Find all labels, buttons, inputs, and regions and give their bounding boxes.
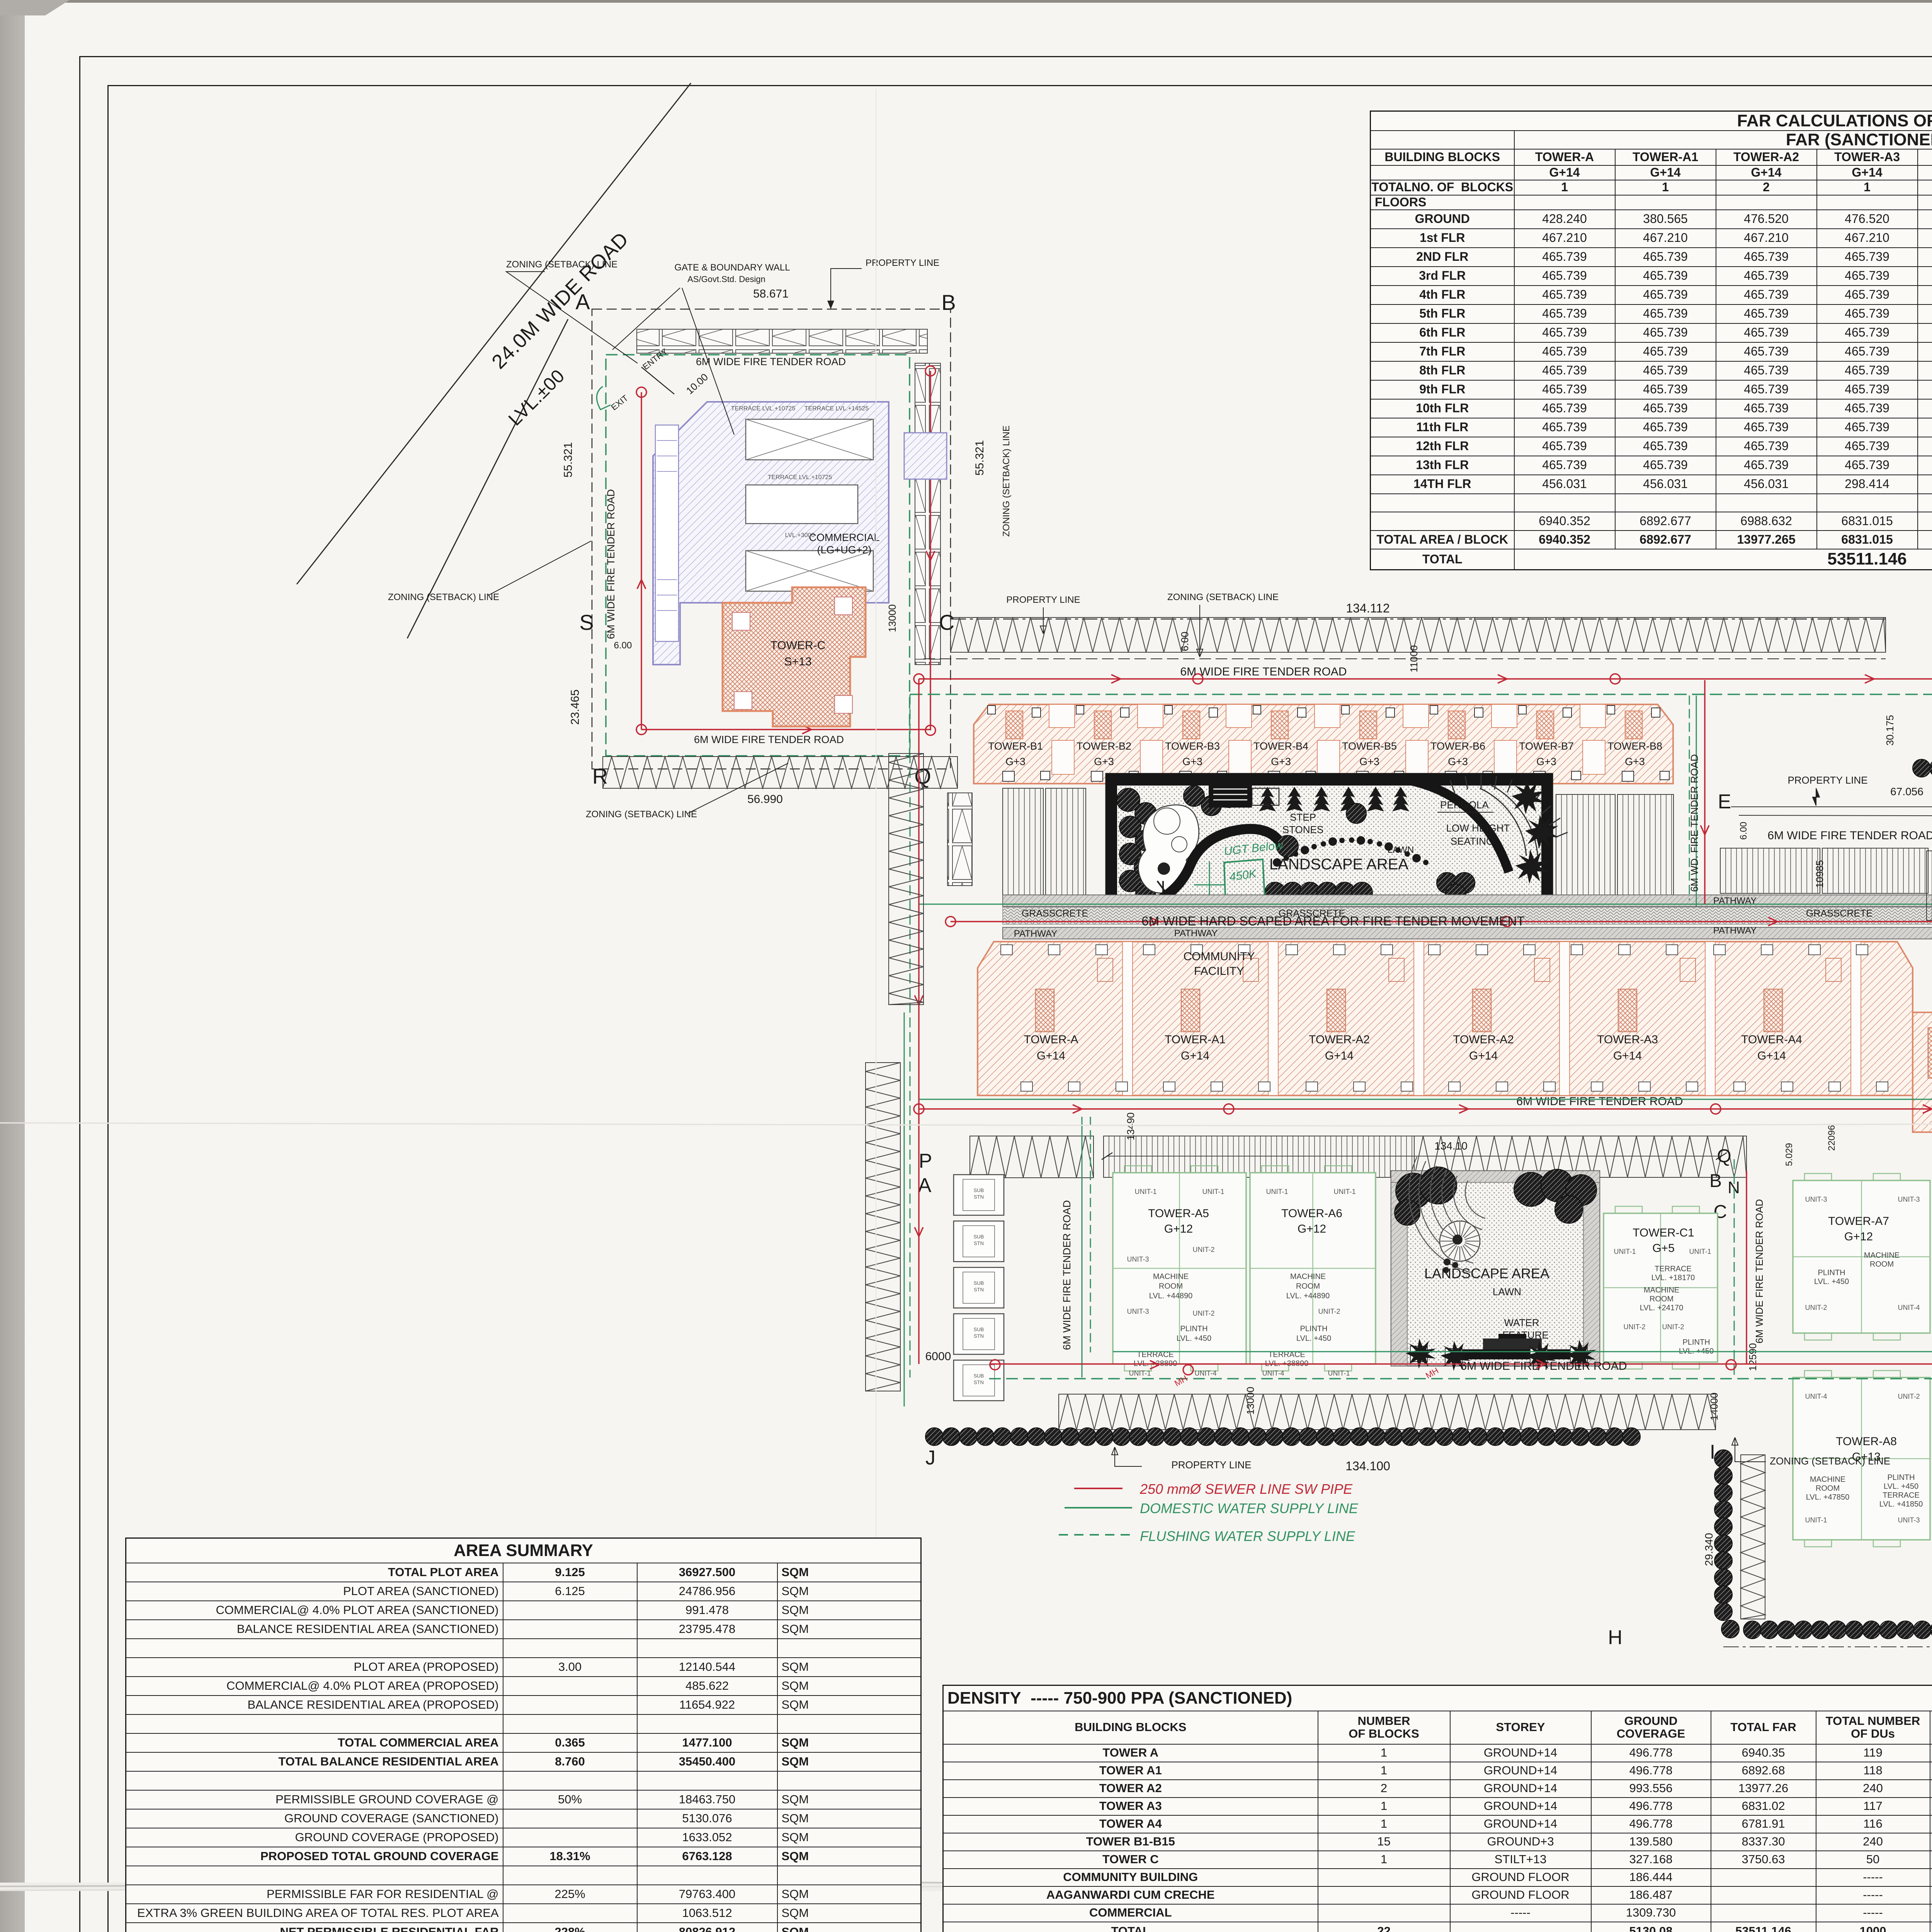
svg-text:SUB: SUB [974, 1280, 984, 1286]
svg-text:6M WIDE HARD SCAPED AREA FOR F: 6M WIDE HARD SCAPED AREA FOR FIRE TENDER… [1141, 914, 1524, 928]
svg-text:55.321: 55.321 [562, 442, 575, 478]
svg-text:ZONING (SETBACK) LINE: ZONING (SETBACK) LINE [506, 259, 617, 270]
svg-text:PROPERTY LINE: PROPERTY LINE [1787, 774, 1867, 786]
svg-text:TOWER-A2: TOWER-A2 [1453, 1033, 1514, 1046]
svg-text:A: A [575, 289, 590, 314]
svg-text:G+3: G+3 [1359, 756, 1379, 767]
svg-text:PLINTH: PLINTH [1818, 1269, 1845, 1277]
svg-text:TOWER-B1: TOWER-B1 [988, 740, 1043, 752]
svg-text:PATHWAY: PATHWAY [1713, 925, 1757, 936]
svg-text:LANDSCAPE AREA: LANDSCAPE AREA [1424, 1265, 1549, 1281]
svg-text:ROOM: ROOM [1296, 1282, 1320, 1291]
svg-text:TOWER-A5: TOWER-A5 [1148, 1207, 1209, 1220]
svg-text:UNIT-1: UNIT-1 [1202, 1188, 1224, 1196]
svg-text:LVL. +450: LVL. +450 [1296, 1334, 1331, 1343]
svg-text:STONES: STONES [1282, 824, 1323, 835]
svg-text:TERRACE: TERRACE [1655, 1265, 1692, 1273]
svg-text:STEP: STEP [1290, 811, 1316, 823]
svg-text:G+3: G+3 [1005, 756, 1026, 767]
svg-text:10985: 10985 [1814, 860, 1825, 888]
svg-text:UNIT-3: UNIT-3 [1898, 1196, 1920, 1203]
svg-text:22096: 22096 [1827, 1125, 1837, 1151]
svg-text:E: E [1718, 791, 1731, 813]
svg-text:G+12: G+12 [1298, 1223, 1326, 1235]
svg-text:UNIT-2: UNIT-2 [1898, 1393, 1920, 1400]
svg-text:G+14: G+14 [1613, 1049, 1642, 1062]
svg-text:COMMERCIAL: COMMERCIAL [809, 532, 879, 543]
svg-text:PROPERTY LINE: PROPERTY LINE [866, 258, 939, 268]
svg-text:ROOM: ROOM [1870, 1260, 1894, 1269]
svg-text:UNIT-1: UNIT-1 [1614, 1248, 1636, 1255]
svg-text:6M WIDE FIRE TENDER ROAD: 6M WIDE FIRE TENDER ROAD [1767, 829, 1932, 842]
svg-text:LOW HEIGHT: LOW HEIGHT [1446, 822, 1510, 834]
svg-text:G+3: G+3 [1625, 756, 1645, 767]
svg-text:134.10: 134.10 [1434, 1140, 1468, 1152]
svg-text:TOWER-A: TOWER-A [1024, 1033, 1078, 1046]
svg-text:6000: 6000 [925, 1350, 951, 1363]
svg-text:10.00: 10.00 [684, 371, 710, 396]
svg-text:13000: 13000 [886, 604, 898, 632]
svg-text:STN: STN [974, 1379, 984, 1385]
svg-text:TOWER-A6: TOWER-A6 [1281, 1207, 1342, 1220]
svg-text:PLINTH: PLINTH [1887, 1473, 1915, 1482]
svg-text:DOMESTIC WATER SUPPLY LINE: DOMESTIC WATER SUPPLY LINE [1140, 1500, 1359, 1516]
svg-text:MH: MH [1173, 1373, 1189, 1388]
svg-text:A: A [918, 1174, 932, 1197]
svg-text:67.056: 67.056 [1890, 786, 1923, 798]
svg-text:H: H [1608, 1626, 1622, 1649]
svg-text:Q: Q [914, 764, 931, 788]
svg-text:UNIT-2: UNIT-2 [1192, 1310, 1214, 1317]
svg-text:FACILITY: FACILITY [1194, 965, 1244, 978]
svg-text:LVL. +18170: LVL. +18170 [1651, 1274, 1695, 1282]
svg-text:UNIT-4: UNIT-4 [1194, 1369, 1216, 1377]
svg-text:UNIT-4: UNIT-4 [1898, 1304, 1920, 1311]
svg-text:TERRACE LVL.+14525: TERRACE LVL.+14525 [804, 405, 869, 412]
svg-text:TOWER-B3: TOWER-B3 [1165, 740, 1220, 752]
svg-text:UNIT-3: UNIT-3 [1898, 1516, 1920, 1524]
svg-text:G+3: G+3 [1182, 756, 1202, 767]
svg-text:TOWER-B4: TOWER-B4 [1253, 740, 1308, 752]
svg-text:6.00: 6.00 [1179, 632, 1190, 651]
svg-text:ZONING (SETBACK) LINE: ZONING (SETBACK) LINE [388, 592, 499, 602]
svg-text:TERRACE: TERRACE [1883, 1491, 1920, 1500]
svg-text:LVL. +450: LVL. +450 [1884, 1482, 1918, 1491]
svg-text:6M WIDE FIRE TENDER ROAD: 6M WIDE FIRE TENDER ROAD [696, 356, 846, 367]
svg-text:LVL. +44890: LVL. +44890 [1149, 1292, 1193, 1300]
svg-text:SUB: SUB [974, 1327, 984, 1332]
svg-text:ROOM: ROOM [1816, 1484, 1840, 1493]
svg-text:FLUSHING WATER SUPPLY LINE: FLUSHING WATER SUPPLY LINE [1140, 1528, 1355, 1544]
svg-text:MACHINE: MACHINE [1644, 1286, 1679, 1294]
svg-text:B: B [1709, 1171, 1722, 1191]
svg-text:B: B [941, 290, 956, 315]
svg-text:R: R [592, 764, 608, 788]
svg-text:LVL.+3000: LVL.+3000 [785, 532, 815, 539]
svg-text:MACHINE: MACHINE [1864, 1251, 1900, 1260]
svg-text:6M WIDE FIRE TENDER ROAD: 6M WIDE FIRE TENDER ROAD [1460, 1360, 1627, 1372]
svg-text:TOWER-A2: TOWER-A2 [1309, 1033, 1370, 1046]
svg-text:TOWER-C1: TOWER-C1 [1633, 1226, 1694, 1239]
svg-text:ROOM: ROOM [1159, 1282, 1183, 1291]
svg-text:LVL. +41850: LVL. +41850 [1879, 1500, 1923, 1509]
svg-text:56.990: 56.990 [747, 793, 783, 806]
svg-text:G+12: G+12 [1844, 1230, 1873, 1243]
svg-text:55.321: 55.321 [973, 440, 986, 476]
svg-text:GATE & BOUNDARY WALL: GATE & BOUNDARY WALL [674, 262, 790, 273]
svg-text:(LG+UG+2): (LG+UG+2) [817, 544, 871, 556]
svg-text:ZONING (SETBACK) LINE: ZONING (SETBACK) LINE [1001, 425, 1012, 537]
svg-text:SEATING: SEATING [1451, 835, 1494, 847]
svg-text:6M WIDE FIRE TENDER ROAD: 6M WIDE FIRE TENDER ROAD [1061, 1200, 1073, 1350]
svg-text:6M WD. FIRE TENDER ROAD: 6M WD. FIRE TENDER ROAD [1689, 754, 1700, 892]
svg-text:5.029: 5.029 [1784, 1143, 1794, 1166]
svg-text:TOWER-A4: TOWER-A4 [1741, 1033, 1802, 1046]
svg-text:ZONING (SETBACK) LINE: ZONING (SETBACK) LINE [586, 809, 697, 820]
svg-text:6M WIDE FIRE TENDER ROAD: 6M WIDE FIRE TENDER ROAD [1180, 665, 1347, 678]
svg-text:6M WIDE FIRE TENDER ROAD: 6M WIDE FIRE TENDER ROAD [1753, 1199, 1765, 1344]
svg-text:ZONING (SETBACK) LINE: ZONING (SETBACK) LINE [1167, 592, 1279, 602]
svg-text:29.340: 29.340 [1703, 1533, 1715, 1566]
svg-text:LAWN: LAWN [1493, 1286, 1521, 1298]
svg-text:UNIT-1: UNIT-1 [1333, 1188, 1355, 1196]
svg-text:TERRACE LVL.+10725: TERRACE LVL.+10725 [768, 474, 832, 481]
svg-text:PROPERTY LINE: PROPERTY LINE [1171, 1459, 1251, 1471]
svg-text:G+3: G+3 [1536, 756, 1556, 767]
svg-text:G+5: G+5 [1652, 1242, 1675, 1255]
svg-text:6M WIDE FIRE TENDER ROAD: 6M WIDE FIRE TENDER ROAD [605, 489, 617, 639]
svg-text:134.100: 134.100 [1345, 1459, 1390, 1473]
svg-text:UNIT-2: UNIT-2 [1623, 1323, 1645, 1331]
svg-text:P: P [919, 1150, 932, 1172]
svg-text:6.00: 6.00 [1738, 822, 1749, 840]
svg-text:6M WIDE FIRE TENDER ROAD: 6M WIDE FIRE TENDER ROAD [1516, 1095, 1683, 1108]
svg-text:PLINTH: PLINTH [1682, 1338, 1710, 1347]
svg-text:ZONING (SETBACK) LINE: ZONING (SETBACK) LINE [1770, 1455, 1890, 1467]
svg-text:G+14: G+14 [1469, 1049, 1498, 1062]
svg-text:MACHINE: MACHINE [1290, 1272, 1326, 1281]
svg-text:G+3: G+3 [1271, 756, 1291, 767]
svg-text:TOWER-B5: TOWER-B5 [1342, 740, 1397, 752]
svg-text:UNIT-2: UNIT-2 [1805, 1304, 1827, 1311]
svg-text:G+3: G+3 [1094, 756, 1114, 767]
svg-text:23.465: 23.465 [569, 689, 582, 725]
svg-text:250 mmØ SEWER LINE SW PIPE: 250 mmØ SEWER LINE SW PIPE [1139, 1481, 1353, 1497]
svg-text:LVL. +450: LVL. +450 [1177, 1334, 1211, 1343]
svg-text:6.00: 6.00 [614, 640, 632, 651]
svg-text:6M WIDE FIRE TENDER ROAD: 6M WIDE FIRE TENDER ROAD [694, 734, 844, 745]
svg-text:STN: STN [974, 1287, 984, 1293]
svg-text:SUB: SUB [974, 1187, 984, 1193]
svg-text:UNIT-1: UNIT-1 [1134, 1188, 1156, 1196]
svg-text:TOWER-B8: TOWER-B8 [1607, 740, 1662, 752]
svg-text:C: C [939, 610, 954, 634]
svg-text:G+14: G+14 [1181, 1049, 1209, 1062]
svg-text:GRASSCRETE: GRASSCRETE [1022, 908, 1088, 919]
svg-text:MACHINE: MACHINE [1153, 1272, 1189, 1281]
svg-text:TOWER-A8: TOWER-A8 [1836, 1435, 1897, 1448]
svg-text:PATHWAY: PATHWAY [1014, 929, 1057, 939]
svg-text:58.671: 58.671 [753, 287, 789, 300]
svg-text:PROPERTY LINE: PROPERTY LINE [1006, 595, 1080, 605]
svg-text:G+3: G+3 [1448, 756, 1468, 767]
svg-text:12590: 12590 [1747, 1343, 1759, 1371]
svg-text:SUB: SUB [974, 1234, 984, 1240]
svg-text:WATER: WATER [1504, 1317, 1539, 1328]
svg-text:UNIT-3: UNIT-3 [1127, 1255, 1149, 1263]
svg-text:S: S [579, 610, 594, 634]
svg-text:J: J [925, 1447, 935, 1469]
svg-text:TERRACE LVL.+10725: TERRACE LVL.+10725 [731, 405, 796, 412]
svg-text:TOWER-C: TOWER-C [770, 639, 826, 652]
svg-text:PATHWAY: PATHWAY [1174, 928, 1218, 939]
svg-text:G+14: G+14 [1325, 1049, 1354, 1062]
svg-text:AS/Govt.Std. Design: AS/Govt.Std. Design [687, 274, 765, 284]
svg-text:LVL. +44890: LVL. +44890 [1286, 1292, 1330, 1300]
svg-text:PLINTH: PLINTH [1180, 1325, 1207, 1333]
svg-text:ROOM: ROOM [1650, 1295, 1673, 1303]
svg-text:UNIT-4: UNIT-4 [1805, 1393, 1827, 1400]
svg-text:EXIT: EXIT [609, 393, 630, 412]
svg-text:UNIT-1: UNIT-1 [1129, 1369, 1151, 1377]
svg-text:UNIT-2: UNIT-2 [1192, 1246, 1214, 1253]
svg-text:13000: 13000 [1245, 1387, 1256, 1415]
svg-text:UNIT-2: UNIT-2 [1318, 1308, 1340, 1315]
svg-text:GRASSCRETE: GRASSCRETE [1806, 908, 1872, 919]
svg-text:TOWER-B7: TOWER-B7 [1519, 740, 1574, 752]
svg-text:UNIT-1: UNIT-1 [1266, 1188, 1288, 1196]
svg-text:UNIT-1: UNIT-1 [1689, 1248, 1711, 1255]
svg-text:UNIT-1: UNIT-1 [1328, 1369, 1350, 1377]
svg-text:COMMUNITY: COMMUNITY [1184, 950, 1255, 963]
svg-text:TOWER-B6: TOWER-B6 [1430, 740, 1485, 752]
svg-text:STN: STN [974, 1194, 984, 1200]
svg-text:TOWER-A3: TOWER-A3 [1597, 1033, 1658, 1046]
svg-text:STN: STN [974, 1240, 984, 1246]
svg-text:S+13: S+13 [784, 655, 812, 668]
svg-text:G+14: G+14 [1757, 1049, 1786, 1062]
svg-text:LVL. +47850: LVL. +47850 [1806, 1493, 1850, 1502]
svg-text:13490: 13490 [1125, 1112, 1136, 1140]
svg-text:SUB: SUB [974, 1373, 984, 1379]
svg-text:PERGOLA: PERGOLA [1440, 799, 1489, 811]
svg-text:LVL. +24170: LVL. +24170 [1640, 1304, 1684, 1312]
svg-text:PLINTH: PLINTH [1300, 1325, 1327, 1333]
svg-text:MACHINE: MACHINE [1810, 1475, 1845, 1484]
svg-text:134.112: 134.112 [1346, 601, 1389, 615]
svg-text:30.175: 30.175 [1884, 715, 1896, 746]
svg-text:LAWN: LAWN [1388, 845, 1414, 855]
svg-text:STN: STN [974, 1333, 984, 1339]
svg-text:UNIT-3: UNIT-3 [1805, 1196, 1827, 1203]
svg-text:TOWER-A1: TOWER-A1 [1165, 1033, 1226, 1046]
svg-text:UNIT-2: UNIT-2 [1662, 1323, 1684, 1331]
svg-text:G+14: G+14 [1037, 1049, 1065, 1062]
svg-text:LVL. +450: LVL. +450 [1814, 1277, 1849, 1286]
svg-text:LANDSCAPE AREA: LANDSCAPE AREA [1269, 856, 1408, 873]
svg-text:LVL.±00: LVL.±00 [505, 366, 569, 430]
svg-text:UNIT-3: UNIT-3 [1127, 1308, 1149, 1315]
svg-text:TOWER-B2: TOWER-B2 [1077, 740, 1131, 752]
svg-text:UNIT-4: UNIT-4 [1262, 1369, 1284, 1377]
svg-text:G+12: G+12 [1164, 1223, 1193, 1235]
svg-text:UNIT-1: UNIT-1 [1805, 1516, 1827, 1524]
svg-text:TOWER-A7: TOWER-A7 [1828, 1215, 1889, 1228]
